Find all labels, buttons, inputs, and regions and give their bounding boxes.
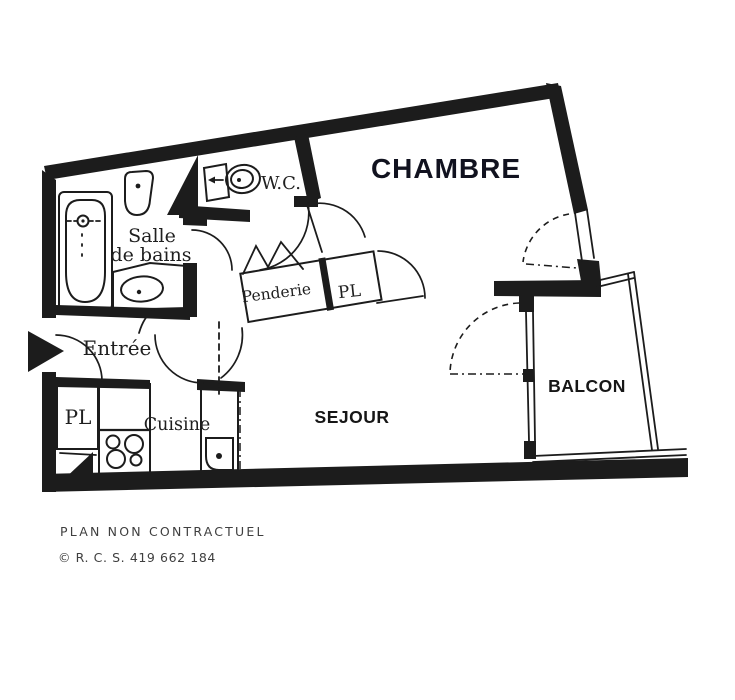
balcony-door-swing-dashed — [450, 303, 519, 373]
bathroom-bottom-wall — [56, 305, 190, 320]
floor-plan-page: CHAMBRE SEJOUR BALCON W.C. Salle de bain… — [0, 0, 735, 700]
pl-door-leaf — [377, 296, 423, 303]
closet-label-pl-kitchen: PL — [65, 405, 92, 429]
room-label-chambre: CHAMBRE — [371, 153, 521, 184]
toilet-icon — [204, 163, 262, 201]
footer-rcs-number: © R. C. S. 419 662 184 — [58, 550, 216, 565]
floor-plan: CHAMBRE SEJOUR BALCON W.C. Salle de bain… — [0, 0, 735, 700]
vanity-sink-icon — [113, 263, 188, 310]
sejour-window-block-top — [519, 294, 534, 312]
chambre-window-radius-dashed — [526, 264, 577, 268]
footer-disclaimer: PLAN NON CONTRACTUEL — [60, 524, 266, 539]
left-wall-upper — [42, 170, 56, 318]
entrance-arrow-icon — [28, 331, 64, 372]
footer: PLAN NON CONTRACTUEL © R. C. S. 419 662 … — [58, 524, 266, 565]
room-label-salle-de-bains-2: de bains — [110, 244, 191, 266]
room-label-cuisine: Cuisine — [144, 415, 210, 435]
chambre-bottom-wall — [494, 280, 601, 297]
stove-burners — [107, 435, 144, 468]
bathtub-icon — [59, 192, 112, 310]
duct-shaft-triangle — [167, 155, 198, 215]
hall-door-arc — [221, 328, 242, 378]
pl-door-arc — [378, 251, 425, 298]
chambre-window-swing-dashed — [523, 214, 569, 262]
sejour-door-arc — [155, 335, 203, 383]
chambre-window — [575, 210, 594, 261]
wc-door-stub — [294, 196, 318, 207]
pedestal-sink-icon — [125, 171, 153, 215]
duct-shaft-foot — [183, 211, 207, 226]
chambre-right-wall — [546, 83, 588, 214]
closet-label-pl-hall: PL — [337, 281, 362, 303]
bathroom-door-arc — [192, 230, 232, 270]
wc-door-arc — [260, 203, 309, 270]
room-label-wc: W.C. — [261, 173, 301, 194]
room-label-balcon: BALCON — [548, 376, 626, 396]
sejour-window-block-mid — [523, 369, 534, 382]
toilet-flush-arrow — [208, 177, 223, 184]
chambre-window-corner-block — [577, 259, 601, 281]
stove-icon — [99, 384, 150, 476]
balcony-railing — [533, 272, 686, 462]
room-label-sejour: SEJOUR — [315, 407, 390, 427]
windows-and-railings — [526, 210, 686, 462]
chambre-door-leaf — [307, 205, 322, 252]
room-label-entree: Entrée — [83, 336, 152, 360]
